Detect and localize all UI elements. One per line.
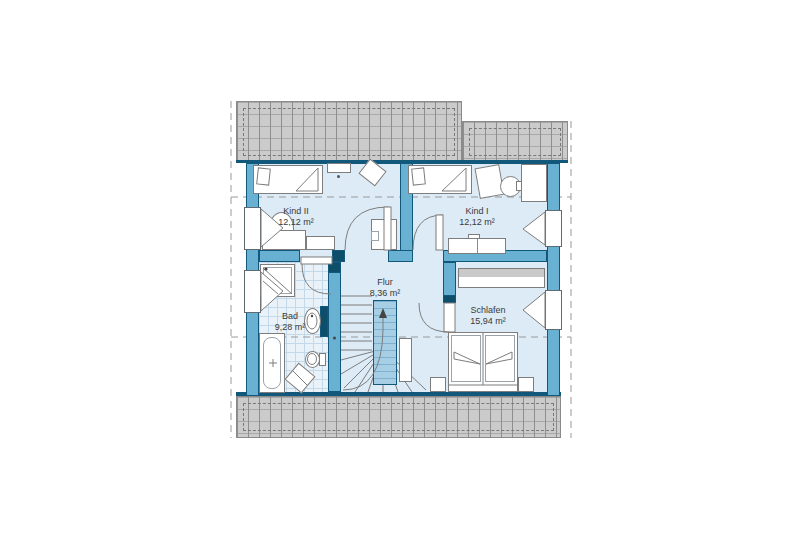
room-area: 15,94 m² (470, 316, 506, 327)
pillow-kind1 (411, 167, 426, 185)
room-name: Flur (370, 277, 401, 288)
pillow-kind2 (256, 167, 271, 185)
desk-kind1 (521, 164, 547, 202)
room-name: Kind II (278, 206, 314, 217)
window-left-2 (244, 270, 261, 313)
room-area: 12,12 m² (278, 217, 314, 228)
wardrobe-schlafen (458, 268, 545, 288)
sideboard-knob-kind1 (468, 234, 480, 239)
label-kind1: Kind I 12,12 m² (459, 206, 495, 227)
toilet-bowl-bad (305, 351, 320, 368)
nightstand-right-schlafen (518, 377, 534, 392)
label-flur: Flur 8,36 m² (370, 277, 401, 298)
desk-kind2 (262, 230, 306, 250)
stairwell-opening (373, 300, 397, 385)
window-left-1 (244, 207, 261, 250)
sink-bad (304, 308, 321, 334)
wall-corridor-segment-3 (388, 250, 413, 262)
shower-inner-bad (263, 267, 292, 294)
wall-bad-flur (328, 262, 341, 392)
room-area: 12,12 m² (459, 217, 495, 228)
cabinet-door-kind2 (371, 231, 379, 241)
wall-corridor-segment-2 (332, 250, 345, 262)
room-name: Schlafen (470, 305, 506, 316)
room-area: 8,36 m² (370, 288, 401, 299)
label-schlafen: Schlafen 15,94 m² (470, 305, 506, 326)
label-bad: Bad 9,28 m² (275, 311, 306, 332)
desk-return-kind2 (306, 236, 335, 250)
room-name: Kind I (459, 206, 495, 217)
mattress-left-schlafen (451, 335, 481, 382)
wall-flur-schlafen-jamb (443, 295, 456, 303)
toilet-tank-bad (319, 353, 326, 366)
shelf-knob-kind2 (337, 175, 340, 178)
wall-right-exterior (547, 163, 560, 396)
room-area: 9,28 m² (275, 322, 306, 333)
mattress-right-schlafen (485, 335, 515, 382)
stair-rail (399, 338, 412, 382)
shelf-kind2 (327, 163, 351, 173)
nightstand-left-schlafen (430, 377, 446, 392)
window-right-2 (545, 290, 562, 330)
sink-vanity-bad (320, 306, 328, 337)
floor-plan-canvas: Kind II 12,12 m² Kind I 12,12 m² Flur 8,… (0, 0, 800, 539)
window-right-1 (545, 210, 562, 247)
wall-corridor-segment-1 (259, 250, 300, 262)
label-kind2: Kind II 12,12 m² (278, 206, 314, 227)
room-name: Bad (275, 311, 306, 322)
roof-overhang-dashed-top-right (469, 128, 561, 156)
sideboard-divider-kind1 (477, 239, 478, 253)
wall-bad-flur-jamb (328, 262, 341, 273)
bathtub-inner-bad (263, 337, 281, 389)
roof-overhang-dashed-top-left (243, 108, 455, 156)
roof-overhang-dashed-bottom (243, 403, 554, 431)
